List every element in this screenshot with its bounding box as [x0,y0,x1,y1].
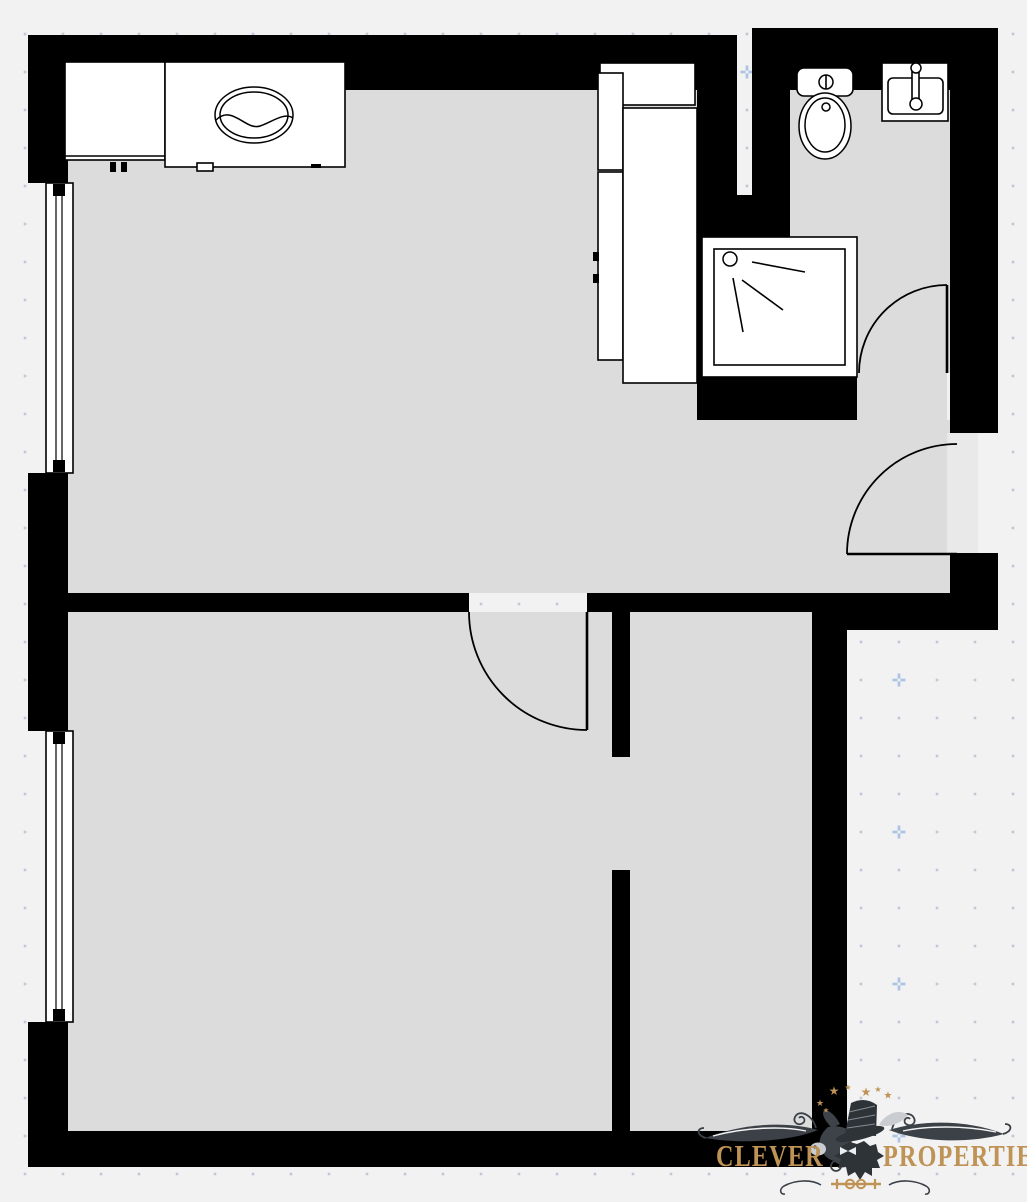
grid-dot [24,1173,27,1176]
grid-dot [898,755,901,758]
grid-dot [442,1173,445,1176]
wall [28,473,68,731]
grid-dot [24,1059,27,1062]
grid-dot [214,33,217,36]
flourish-right-leaf [879,1112,908,1126]
grid-dot [252,33,255,36]
floor-living-kitchen [697,420,950,593]
grid-dot [328,33,331,36]
grid-dot [62,1173,65,1176]
window-bedroom-stop [53,732,65,744]
wall [790,373,857,420]
grid-dot [24,1135,27,1138]
floorplan-canvas: ★★★★★★★ CLEVER PROPERTIES [0,0,1027,1202]
grid-dot [24,375,27,378]
grid-dot [1012,109,1015,112]
star-icon: ★ [823,1106,829,1114]
grid-dot [1012,489,1015,492]
grid-dot [24,755,27,758]
grid-dot [936,793,939,796]
grid-dot [936,641,939,644]
grid-dot [936,1021,939,1024]
grid-dot [860,831,863,834]
grid-dot [1012,33,1015,36]
grid-dot [480,33,483,36]
grid-dot [404,1173,407,1176]
floor-hallway [630,610,812,1131]
wall [63,593,469,612]
wall [28,35,68,183]
wall [612,870,630,1131]
grid-dot [860,945,863,948]
floor-bathroom [857,373,947,420]
grid-dot [974,831,977,834]
grid-dot [898,869,901,872]
grid-dot [24,679,27,682]
grid-dot [1012,679,1015,682]
grid-dot [860,641,863,644]
grid-dot [974,641,977,644]
grid-dot [404,33,407,36]
grid-dot [556,1173,559,1176]
grid-dot [936,717,939,720]
grid-dot [632,1173,635,1176]
grid-dot [100,33,103,36]
wall [587,593,812,612]
grid-dot [708,33,711,36]
grid-dot [24,1021,27,1024]
grid-dot [1012,413,1015,416]
grid-dot [898,641,901,644]
grid-dot [24,147,27,150]
grid-dot [898,907,901,910]
flourish-left-hook [699,1128,706,1138]
grid-dot [594,1173,597,1176]
grid-dot [936,831,939,834]
kitchen-tall-unit [598,172,623,360]
grid-dot [860,983,863,986]
grid-dot [1012,945,1015,948]
grid-dot [24,261,27,264]
grid-dot [670,1173,673,1176]
flourish-right-hook [1003,1124,1010,1134]
under-curl-left [781,1181,821,1194]
cabinet-handle [197,163,213,171]
grid-dot [252,1173,255,1176]
grid-dot [1012,793,1015,796]
grid-dot [138,33,141,36]
grid-dot [898,1021,901,1024]
grid-dot [176,33,179,36]
grid-dot [62,33,65,36]
grid-dot [556,33,559,36]
kitchen-tall-unit [598,73,623,170]
entry-threshold [947,433,978,554]
grid-dot [24,1097,27,1100]
cabinet-handle [110,162,116,172]
grid-dot [24,413,27,416]
grid-dot [1012,185,1015,188]
wall [752,28,998,90]
grid-dot [1012,71,1015,74]
grid-dot [594,33,597,36]
flourish-left-spiral [794,1113,816,1128]
grid-dot [24,603,27,606]
window-living-stop [53,460,65,472]
grid-dot [366,33,369,36]
grid-dot [1012,641,1015,644]
grid-dot [518,1173,521,1176]
grid-dot [746,109,749,112]
grid-dot [1012,223,1015,226]
grid-dot [974,1021,977,1024]
grid-dot [24,33,27,36]
grid-dot [860,793,863,796]
grid-dot [974,793,977,796]
grid-dot [974,907,977,910]
cabinet-handle [311,164,321,168]
grid-dot [328,1173,331,1176]
grid-dot [24,223,27,226]
window-living [46,183,73,473]
shower-head [723,252,737,266]
grid-dot [1012,983,1015,986]
cabinet-handle [121,162,127,172]
grid-dot [24,641,27,644]
grid-dot [860,755,863,758]
wall [612,612,630,757]
star-icon: ★ [844,1083,851,1092]
grid-dot [24,451,27,454]
grid-dot [24,565,27,568]
grid-dot [24,337,27,340]
kitchen-tall-unit [623,108,697,383]
window-bedroom-stop [53,1009,65,1021]
grid-dot [1012,907,1015,910]
grid-dot [24,71,27,74]
grid-dot [1012,565,1015,568]
toilet-bowl-dot [822,103,830,111]
grid-dot [974,717,977,720]
grid-dot [860,869,863,872]
grid-dot [24,983,27,986]
logo-text-right: PROPERTIES [883,1139,1027,1173]
grid-dot [24,869,27,872]
star-icon: ★ [861,1085,872,1099]
kitchen-counter [65,62,165,160]
brand-logo: ★★★★★★★ CLEVER PROPERTIES [690,1060,1027,1202]
star-icon: ★ [829,1084,840,1098]
star-icon: ★ [874,1085,881,1094]
grid-dot [24,907,27,910]
grid-dot [898,945,901,948]
grid-dot [746,147,749,150]
grid-dot [176,1173,179,1176]
logo-decor-svg: ★★★★★★★ [690,1060,1027,1202]
grid-dot [1012,869,1015,872]
grid-dot [24,945,27,948]
grid-dot [24,109,27,112]
grid-dot [480,1173,483,1176]
grid-dot [1012,451,1015,454]
grid-dot [24,717,27,720]
window-living-stop [53,184,65,196]
grid-dot [1012,337,1015,340]
grid-dot [1012,603,1015,606]
grid-dot [974,755,977,758]
grid-dot [556,603,559,606]
grid-dot [290,1173,293,1176]
grid-dot [670,33,673,36]
grid-dot [1012,147,1015,150]
grid-dot [632,33,635,36]
cabinet-handle [593,274,599,283]
grid-dot [442,33,445,36]
grid-dot [480,603,483,606]
grid-dot [1012,717,1015,720]
grid-dot [214,1173,217,1176]
wall [950,90,998,433]
under-curl-right [889,1181,929,1194]
grid-dot [1012,375,1015,378]
bath-faucet-knob [910,98,922,110]
floor-bedroom [612,757,630,870]
grid-dot [974,945,977,948]
grid-dot [1012,527,1015,530]
grid-dot [746,185,749,188]
grid-dot [1012,1021,1015,1024]
logo-text-left: CLEVER [716,1139,824,1173]
star-icon: ★ [884,1091,893,1102]
key-icon [831,1179,881,1189]
floor-bedroom [68,612,612,1131]
grid-dot [936,869,939,872]
grid-dot [936,755,939,758]
grid-dot [1012,755,1015,758]
grid-dot [290,33,293,36]
grid-dot [366,1173,369,1176]
grid-dot [860,907,863,910]
grid-dot [974,983,977,986]
grid-dot [518,33,521,36]
grid-dot [518,603,521,606]
floorplan-svg [0,0,1027,1202]
grid-dot [898,717,901,720]
grid-dot [860,679,863,682]
grid-dot [898,793,901,796]
grid-dot [24,299,27,302]
grid-dot [100,1173,103,1176]
grid-dot [974,679,977,682]
grid-dot [24,831,27,834]
grid-dot [1012,299,1015,302]
grid-dot [24,527,27,530]
grid-dot [24,489,27,492]
grid-dot [936,907,939,910]
grid-dot [138,1173,141,1176]
grid-dot [24,793,27,796]
grid-dot [860,717,863,720]
window-bedroom [46,731,73,1022]
grid-dot [936,945,939,948]
grid-dot [24,185,27,188]
grid-dot [1012,831,1015,834]
bath-faucet-knob [911,63,921,73]
grid-dot [936,679,939,682]
grid-dot [860,1021,863,1024]
grid-dot [746,33,749,36]
grid-dot [936,983,939,986]
cabinet-handle [593,252,599,261]
grid-dot [974,869,977,872]
grid-dot [1012,261,1015,264]
